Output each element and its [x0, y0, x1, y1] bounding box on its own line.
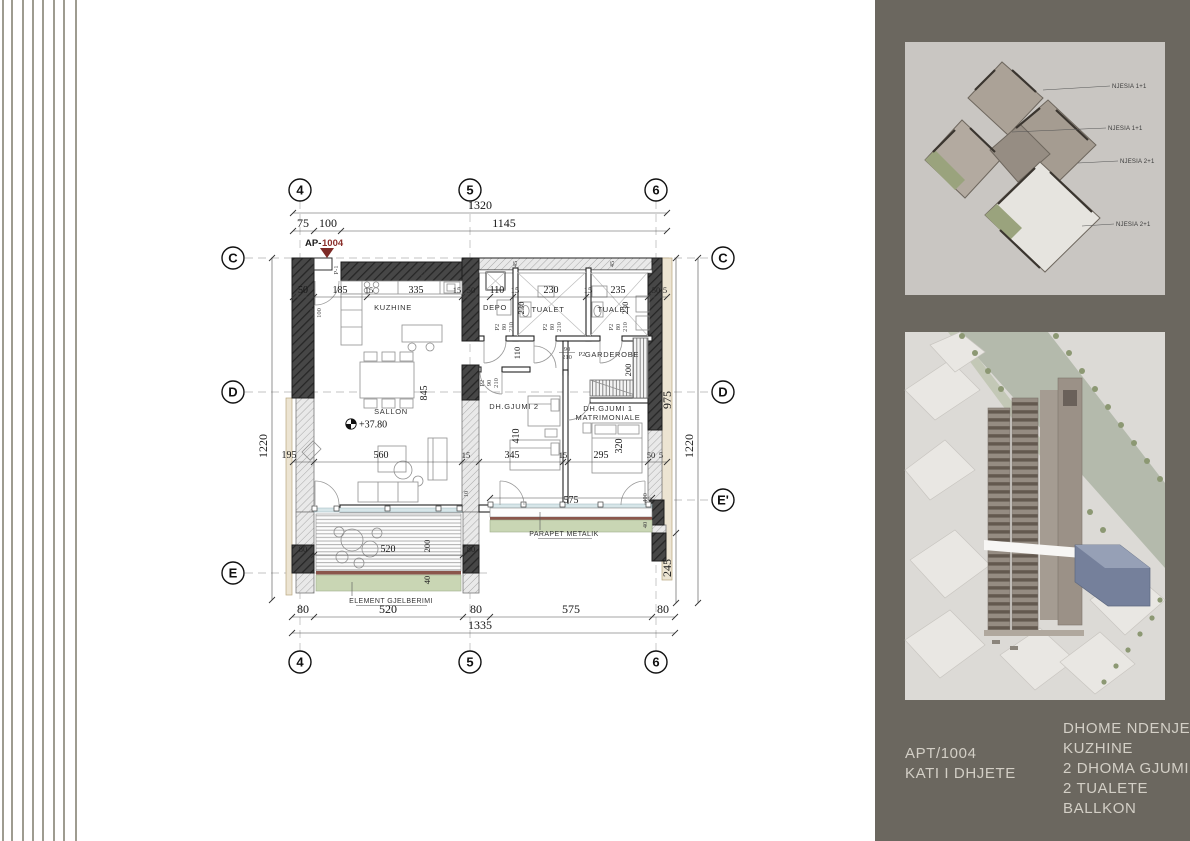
dim-50: 50: [467, 285, 476, 295]
dim-15: 15: [462, 450, 471, 460]
axon-panel: NJESIA 1+1 NJESIA 1+1 NJESIA 2+1 NJESIA …: [905, 42, 1165, 295]
door-p2: P2: [542, 324, 549, 331]
grid-bubble-4-top: 4: [296, 183, 304, 198]
dim-15: 15: [365, 285, 374, 295]
dim-1145: 1145: [492, 216, 516, 230]
dim-150: 150: [420, 267, 427, 277]
axon-label-3: NJESIA 2+1: [1120, 159, 1155, 165]
dim-110: 110: [490, 285, 505, 296]
room-bedroom-2: DH.GJUMI 2: [489, 402, 539, 411]
dim-400: 400: [642, 493, 649, 503]
balcony-bedrooms: [490, 508, 652, 532]
grid-bubble-5-bottom: 5: [466, 655, 473, 670]
dim-230: 230: [544, 285, 559, 296]
program-item: 2 DHOMA GJUMI: [1063, 760, 1189, 777]
dim-15: 15: [511, 285, 520, 295]
door-p2: P2: [479, 380, 486, 387]
program-item: DHOME NDENJE: [1063, 720, 1190, 737]
dim-40: 40: [422, 576, 432, 585]
level-value: +37.80: [359, 420, 387, 431]
door-80: 80: [501, 324, 508, 331]
grid-bubble-5-top: 5: [466, 183, 473, 198]
grid-bubble-C-right: C: [718, 251, 728, 266]
dim-1335: 1335: [468, 618, 492, 632]
room-toilet-2: TUALET: [598, 305, 631, 314]
axon-label-1: NJESIA 1+1: [1112, 84, 1147, 90]
dim-295: 295: [594, 450, 609, 461]
dim-575-b: 575: [562, 602, 580, 616]
dim-235: 235: [611, 285, 626, 296]
door-210: 210: [556, 322, 563, 332]
grid-bubble-Eprime-right: E': [717, 493, 729, 508]
grid-bubble-4-bottom: 4: [296, 655, 304, 670]
room-wardrobe: GARDEROBE: [585, 350, 639, 359]
dim-80: 80: [467, 544, 476, 554]
door-210: 210: [508, 322, 515, 332]
room-bedroom-1-sub: MATRIMONIALE: [576, 413, 641, 422]
apartment-id: APT/1004: [905, 745, 977, 762]
note-greenery: ELEMENT GJELBERIMI: [349, 598, 433, 605]
dim-45: 45: [512, 261, 519, 268]
tower: [984, 378, 1084, 650]
grid-bubble-D-left: D: [228, 385, 237, 400]
dim-10: 10: [463, 491, 470, 498]
dim-1220-left: 1220: [256, 434, 270, 458]
ceiling-band: [479, 258, 652, 270]
dim-15: 15: [559, 450, 568, 460]
dim-80-b: 80: [470, 602, 482, 616]
dim-245: 245: [660, 559, 674, 577]
apartment-marker-prefix: AP-: [305, 238, 321, 249]
grid-bubble-6-top: 6: [652, 183, 659, 198]
render-panel: [905, 332, 1165, 700]
dim-520: 520: [381, 544, 396, 555]
dim-50: 50: [647, 450, 656, 460]
dim-560: 560: [374, 450, 389, 461]
dim-80: 80: [299, 544, 308, 554]
dim-200-v: 200: [623, 364, 633, 377]
dim-320: 320: [614, 439, 625, 454]
grid-bubble-D-right: D: [718, 385, 727, 400]
grid-bubble-C-left: C: [228, 251, 238, 266]
dim-80-b: 80: [657, 602, 669, 616]
dim-975: 975: [660, 391, 674, 409]
door-80: 80: [615, 324, 622, 331]
dim-1320: 1320: [468, 198, 492, 212]
door-90: 90: [486, 380, 493, 387]
dim-80-b: 80: [297, 602, 309, 616]
floor-label: KATI I DHJETE: [905, 765, 1016, 782]
dim-50: 50: [652, 285, 661, 295]
grid-bubble-E-left: E: [229, 566, 238, 581]
plan-sheet: 4 5 6 4 5 6 C D E C D E': [0, 0, 1190, 841]
entry-column: [314, 258, 332, 270]
room-bedroom-1: DH.GJUMI 1: [583, 404, 633, 413]
dim-5: 5: [663, 285, 667, 295]
room-storage: DEPO: [483, 303, 507, 312]
dim-100: 100: [319, 216, 337, 230]
room-living: SALLON: [374, 407, 408, 416]
door-80: 80: [549, 324, 556, 331]
door-210: 210: [493, 378, 500, 388]
axon-label-2: NJESIA 1+1: [1108, 126, 1143, 132]
door-100: 100: [316, 308, 323, 318]
dim-15: 15: [584, 285, 593, 295]
dim-110-v: 110: [512, 347, 522, 359]
dim-1220-right: 1220: [682, 434, 696, 458]
door-90: 90: [564, 346, 571, 353]
dim-345: 345: [505, 450, 520, 461]
door-p2: P2: [608, 324, 615, 331]
dim-15: 15: [453, 285, 462, 295]
axon-label-4: NJESIA 2+1: [1116, 222, 1151, 228]
dim-845: 845: [419, 386, 430, 401]
dim-575-balc: 575: [564, 495, 579, 506]
door-210: 210: [309, 308, 316, 318]
note-parapet: PARAPET METALIK: [529, 531, 598, 538]
dim-195: 195: [282, 450, 297, 461]
apartment-marker-number: 1004: [322, 238, 344, 249]
dim-410: 410: [511, 429, 522, 444]
level-marker: +37.80: [346, 419, 387, 431]
room-kitchen: KUZHINE: [374, 303, 412, 312]
sidebar: NJESIA 1+1 NJESIA 1+1 NJESIA 2+1 NJESIA …: [875, 0, 1190, 841]
program-item: KUZHINE: [1063, 740, 1133, 757]
dim-335: 335: [409, 285, 424, 296]
program-item: 2 TUALETE: [1063, 780, 1148, 797]
door-210: 210: [622, 322, 629, 332]
dim-230-v: 230: [516, 302, 526, 315]
door-p2: P2: [494, 324, 501, 331]
dim-75: 75: [297, 216, 309, 230]
dim-45: 45: [609, 261, 616, 268]
dim-200-balc: 200: [422, 540, 432, 553]
door-p1-label: P-1: [333, 265, 340, 274]
dim-5: 5: [659, 450, 663, 460]
dim-40: 40: [642, 522, 649, 529]
door-210: 210: [562, 354, 572, 361]
dim-50: 50: [298, 285, 308, 296]
grid-bubble-6-bottom: 6: [652, 655, 659, 670]
room-toilet-1: TUALET: [532, 305, 565, 314]
dim-185: 185: [333, 285, 348, 296]
program-item: BALLKON: [1063, 800, 1136, 817]
